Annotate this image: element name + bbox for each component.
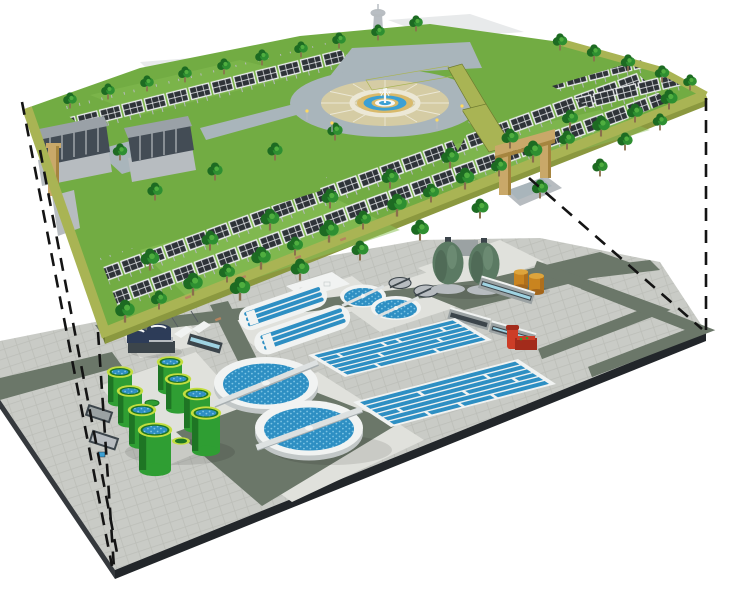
two-level-plant-illustration bbox=[0, 0, 740, 589]
fountain-plaza bbox=[290, 69, 480, 137]
concept-render bbox=[0, 0, 740, 589]
